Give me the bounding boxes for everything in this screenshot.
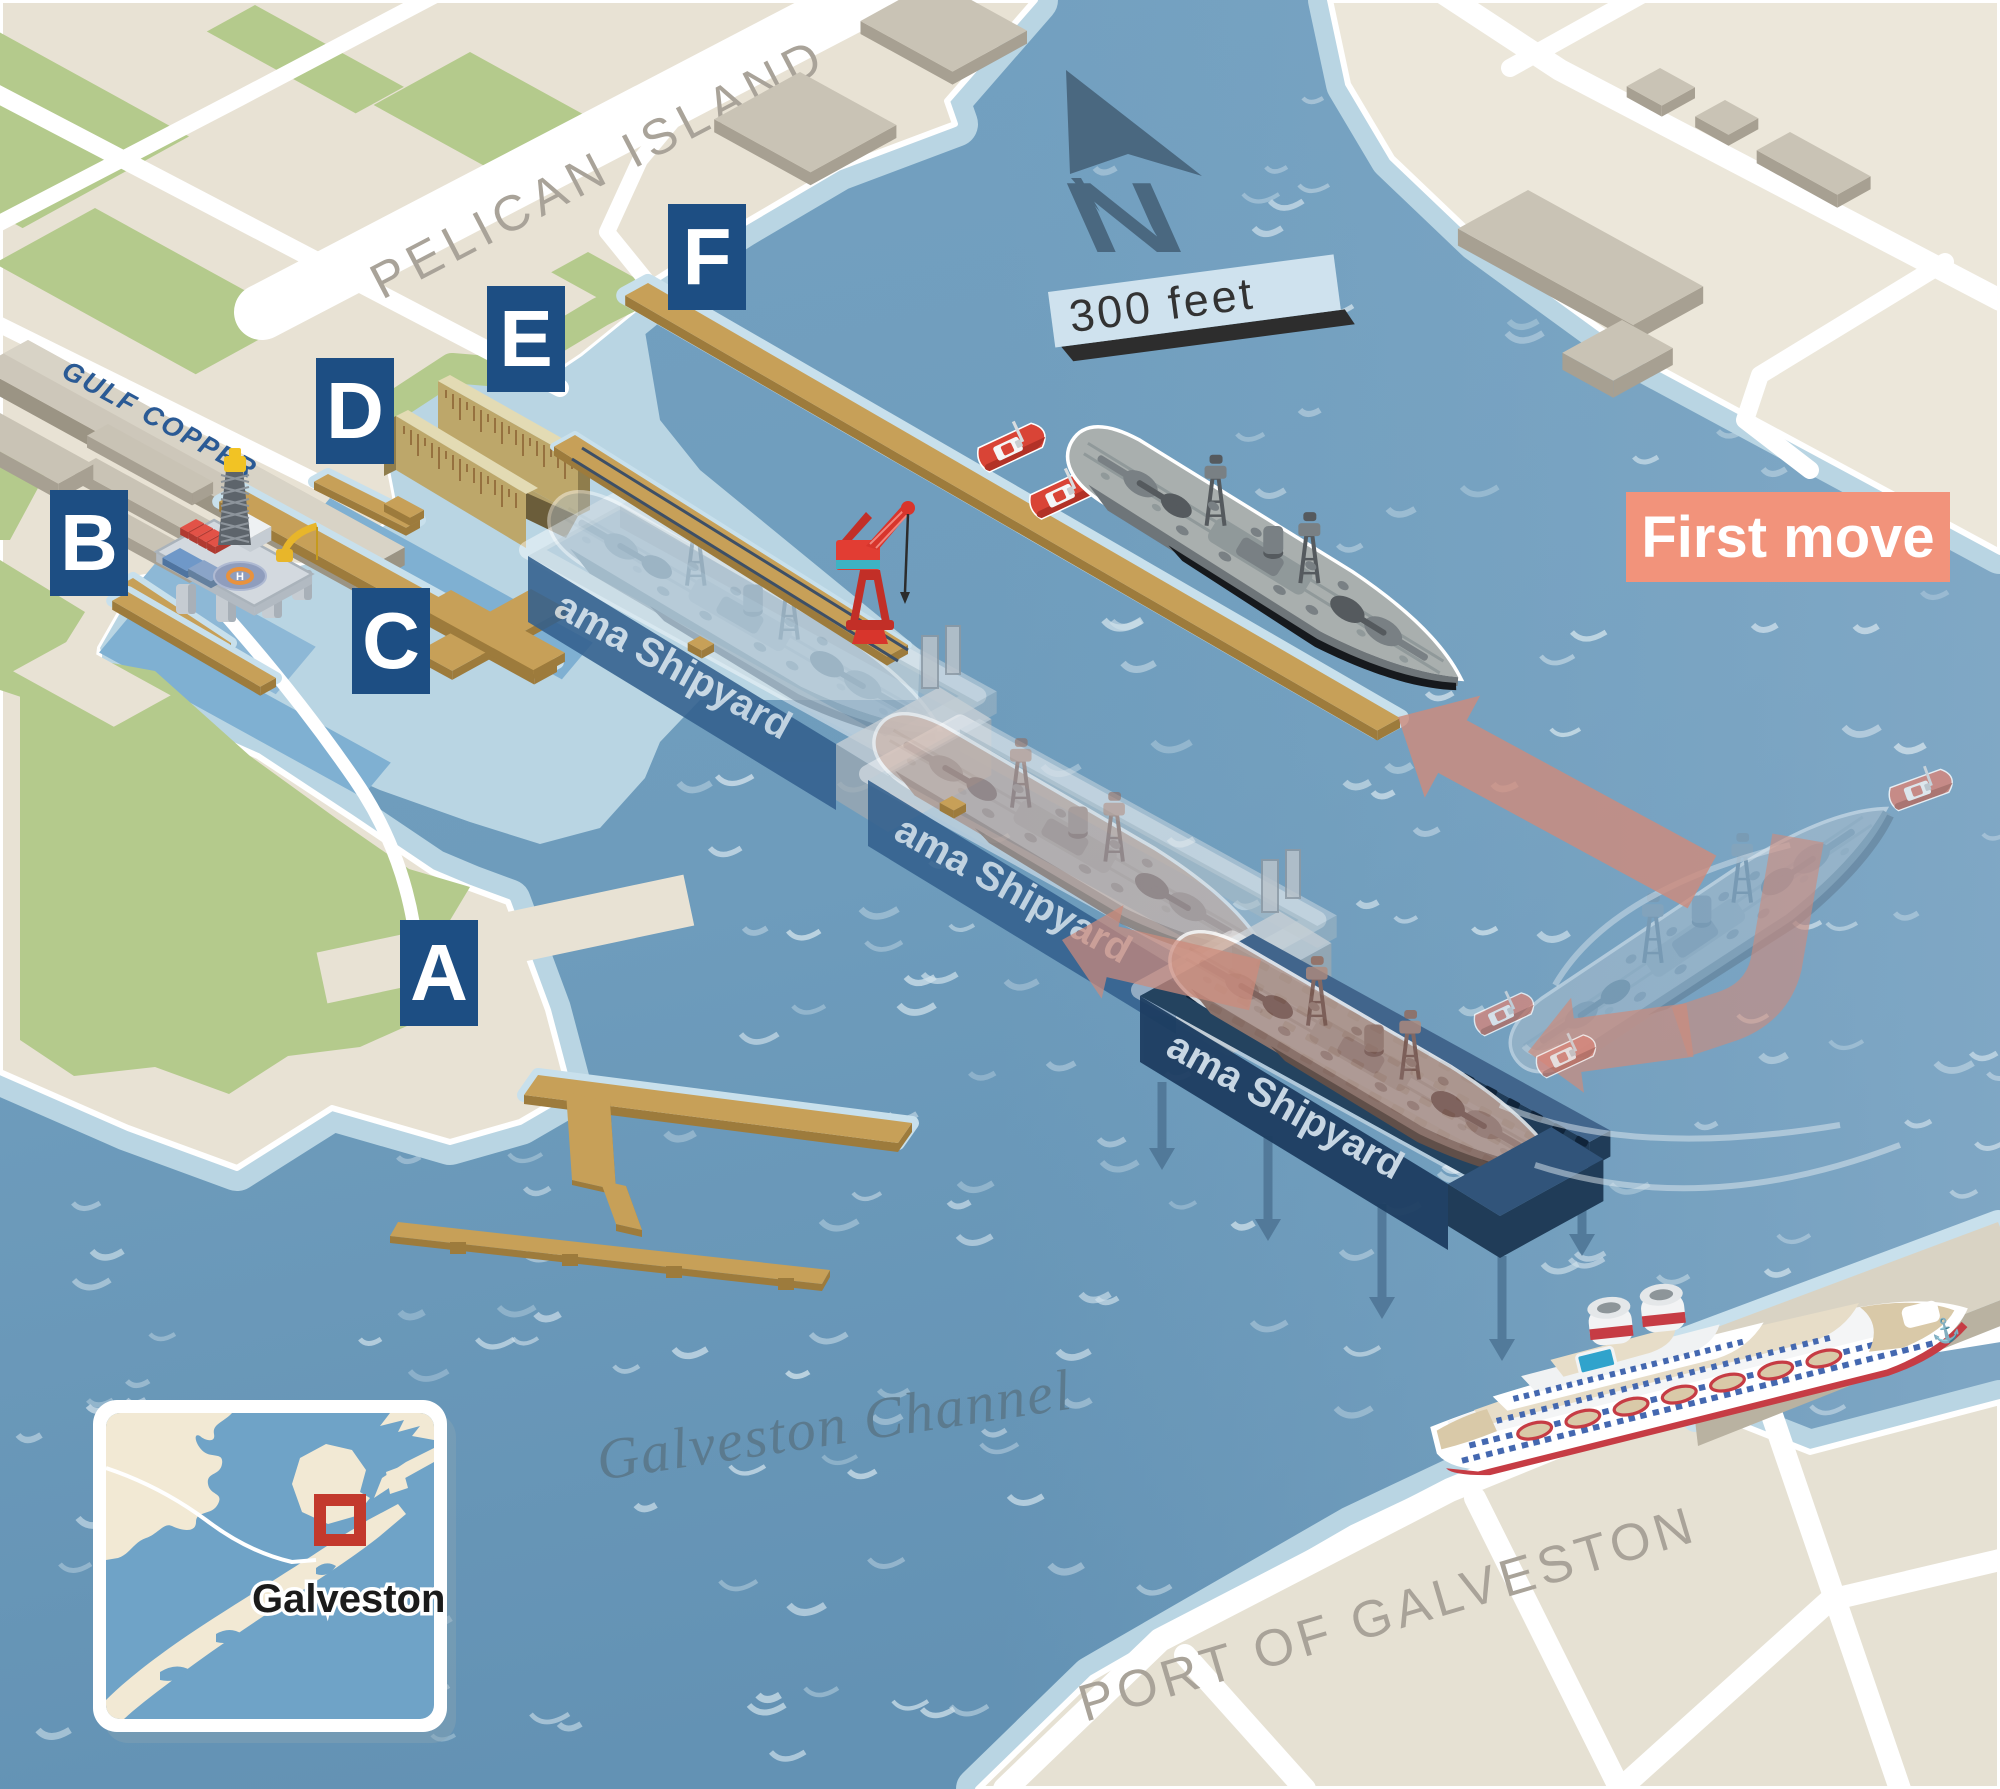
svg-text:E: E <box>499 294 552 383</box>
svg-text:F: F <box>683 212 732 301</box>
svg-text:H: H <box>236 571 244 583</box>
svg-text:B: B <box>60 498 118 587</box>
svg-text:Galveston: Galveston <box>252 1577 445 1621</box>
svg-text:D: D <box>326 366 384 455</box>
svg-text:First move: First move <box>1641 505 1934 570</box>
svg-text:A: A <box>410 928 468 1017</box>
svg-text:C: C <box>362 596 420 685</box>
